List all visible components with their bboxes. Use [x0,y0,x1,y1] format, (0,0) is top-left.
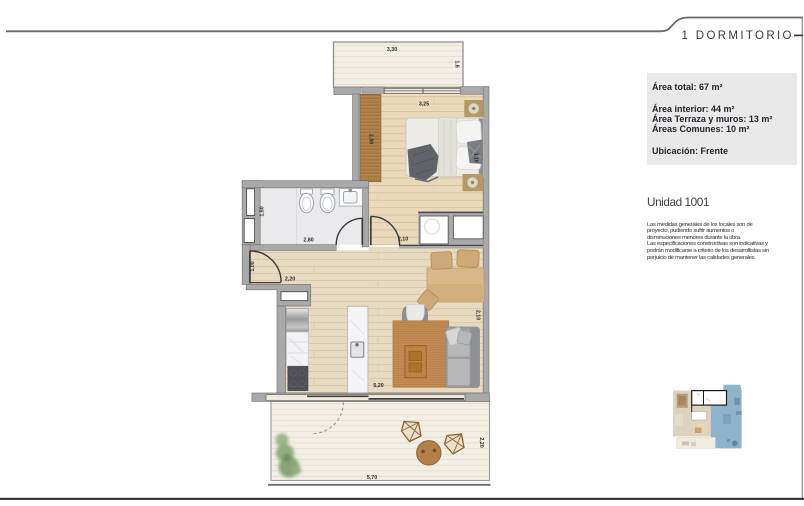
svg-text:2,90: 2,90 [368,134,374,144]
svg-text:2,80: 2,80 [303,238,313,244]
svg-text:2,10: 2,10 [475,310,481,320]
svg-text:2,10: 2,10 [398,237,408,243]
svg-text:1,00: 1,00 [250,261,256,271]
svg-text:5,70: 5,70 [367,475,377,481]
svg-text:3,10: 3,10 [473,152,479,162]
svg-text:1,6: 1,6 [454,60,460,67]
svg-text:2,20: 2,20 [478,437,484,447]
svg-text:3,25: 3,25 [419,102,429,108]
svg-text:5,20: 5,20 [373,383,383,389]
svg-text:3,30: 3,30 [387,47,397,53]
svg-text:1,50: 1,50 [260,206,266,216]
svg-text:2,20: 2,20 [285,277,295,283]
